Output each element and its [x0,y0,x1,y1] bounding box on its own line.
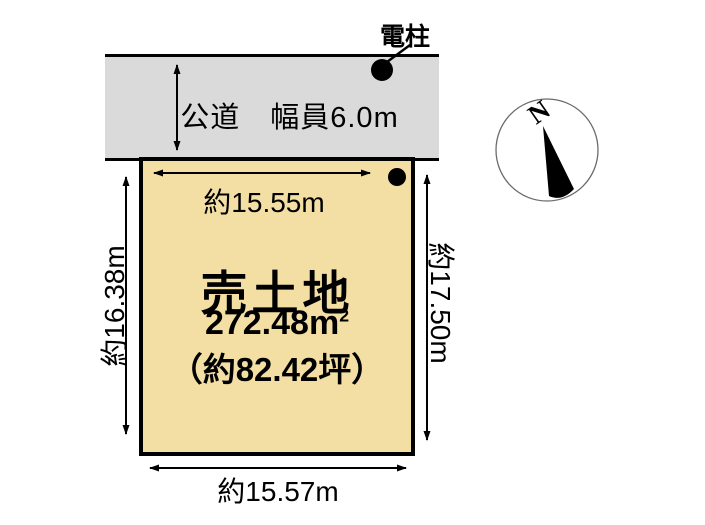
compass-needle-icon [543,126,574,198]
parcel-area-exponent: 2 [339,306,349,326]
dimension-label-left: 約16.38m [93,206,123,406]
compass-north-label: N [518,91,560,133]
land-plot-diagram: 公道 幅員6.0m 電柱 約15.55m 約16.38m 約17.50m 約15… [0,0,705,525]
utility-pole-label: 電柱 [345,17,465,53]
parcel-area-value: 272.48m [205,304,339,342]
dimension-label-right: 約17.50m [432,203,462,403]
dimension-label-top: 約15.55m [139,181,389,221]
dimension-label-bottom: 約15.57m [153,470,403,510]
parcel-area: 272.48m2 [139,304,415,343]
road-label: 公道 幅員6.0m [177,94,402,136]
parcel-area-tsubo: （約82.42坪） [139,343,415,391]
